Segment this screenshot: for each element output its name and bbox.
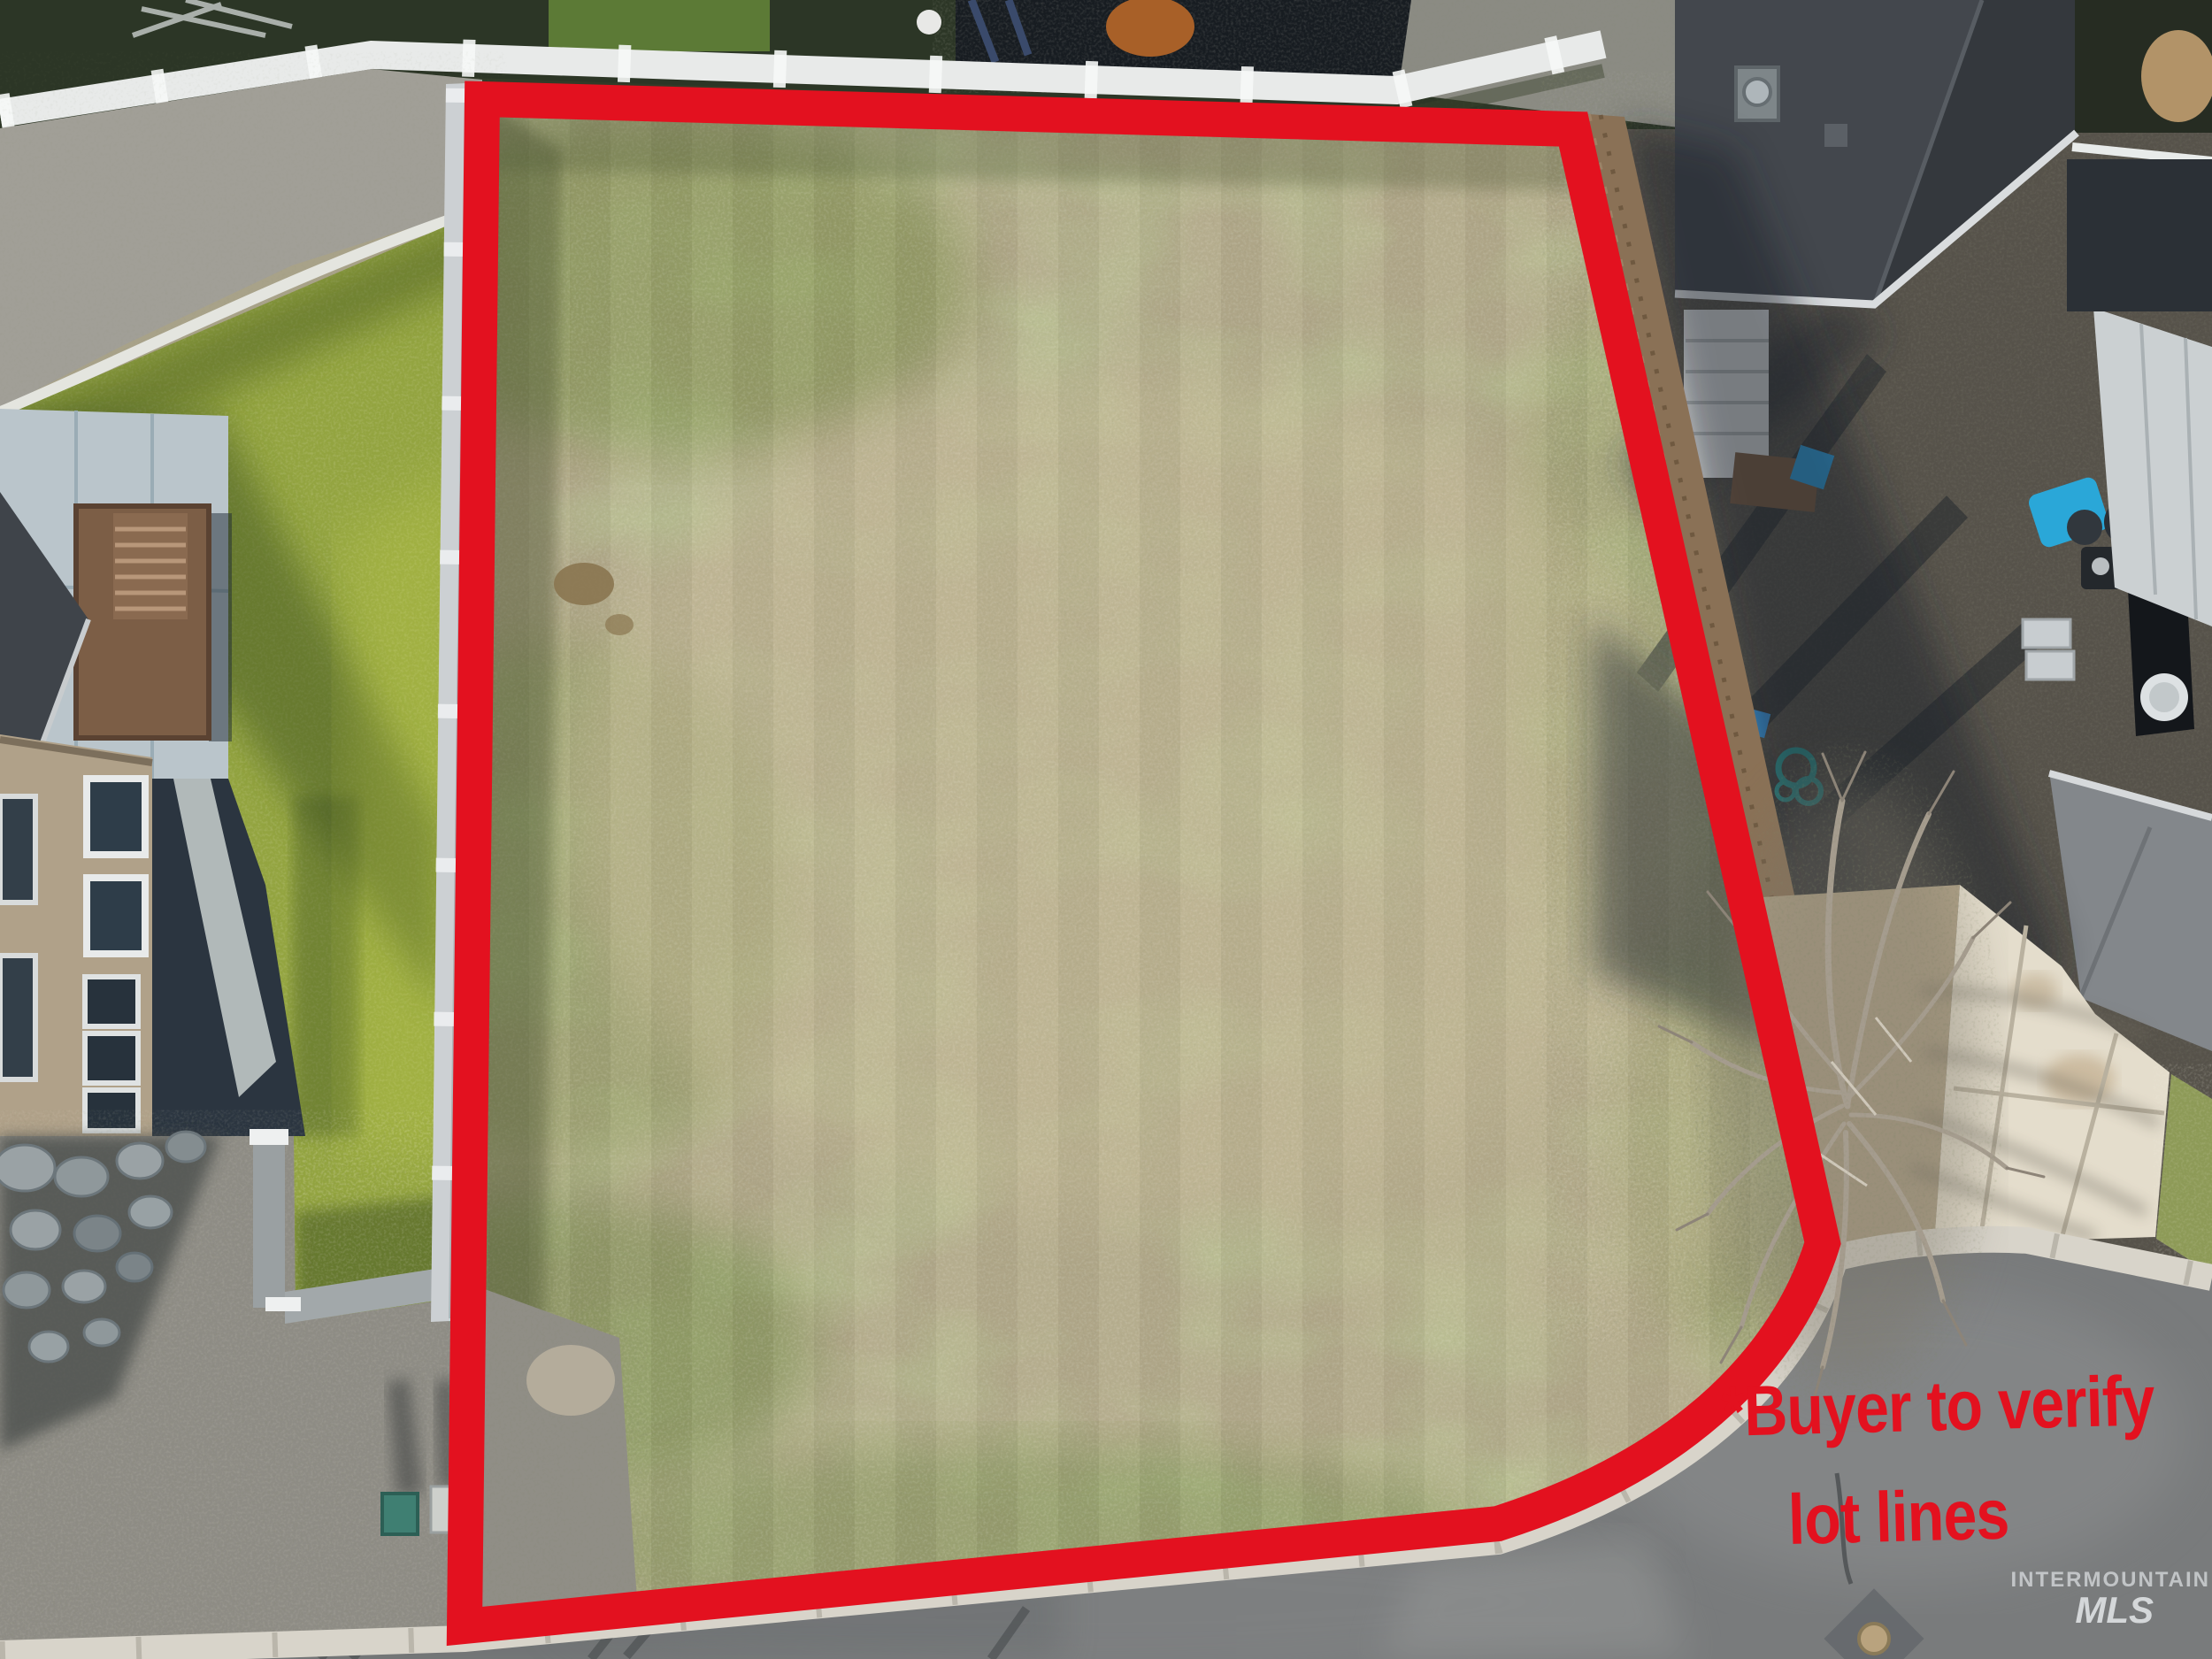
neighbor-lawn-top	[549, 0, 770, 51]
patio-chair	[2067, 510, 2102, 545]
dark-gravel-right	[2067, 159, 2212, 311]
dirt-patch	[554, 563, 614, 605]
aerial-photo-canvas	[0, 0, 2212, 1659]
aerial-photo: *Buyer to verify lot lines INTERMOUNTAIN…	[0, 0, 2212, 1659]
left-neighbor-property	[0, 69, 495, 1654]
roof-vent	[1824, 124, 1847, 147]
gravel-mound	[526, 1345, 615, 1416]
propane-tank	[917, 10, 941, 35]
ac-unit	[2023, 619, 2070, 648]
ac-unit	[2026, 651, 2074, 680]
